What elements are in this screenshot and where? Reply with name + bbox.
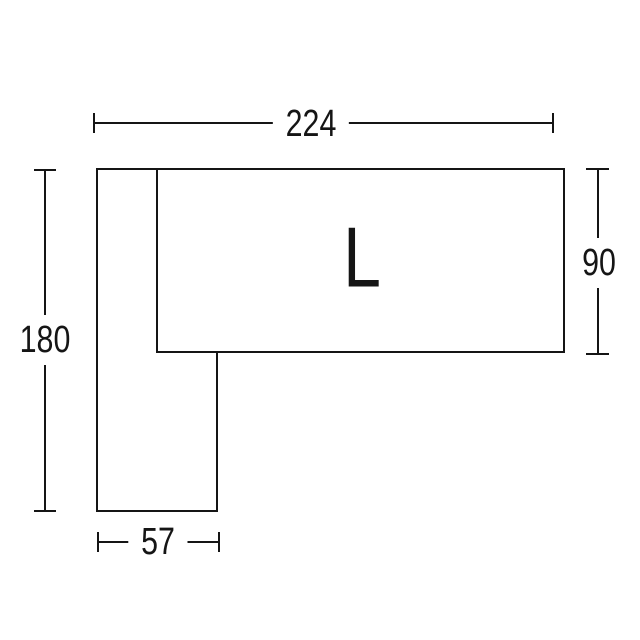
dimension-label-left-height: 180 xyxy=(7,315,83,365)
dimension-label-bottom-leg-width: 57 xyxy=(128,517,187,567)
dimension-tick-top-right xyxy=(552,113,554,133)
dimension-tick-top-left xyxy=(93,113,95,133)
shape-seam-line xyxy=(156,168,158,353)
shape-leg-bottom-edge xyxy=(96,510,218,512)
shape-right-edge xyxy=(563,168,565,353)
dimension-label-right-depth: 90 xyxy=(569,238,628,288)
dimension-tick-bottom-right xyxy=(218,532,220,552)
dimension-tick-left-bottom xyxy=(34,510,56,512)
dimension-tick-right-top xyxy=(586,168,609,170)
dimension-tick-left-top xyxy=(34,169,56,171)
dimension-tick-bottom-left xyxy=(97,532,99,552)
shape-left-edge xyxy=(96,168,98,512)
dimension-diagram: 224 180 90 57 L xyxy=(0,0,640,640)
dimension-label-top-width: 224 xyxy=(273,99,349,149)
dimension-tick-right-bottom xyxy=(586,353,609,355)
shape-type-label: L xyxy=(343,216,381,301)
shape-leg-right-edge xyxy=(216,351,218,512)
shape-top-edge xyxy=(96,168,565,170)
